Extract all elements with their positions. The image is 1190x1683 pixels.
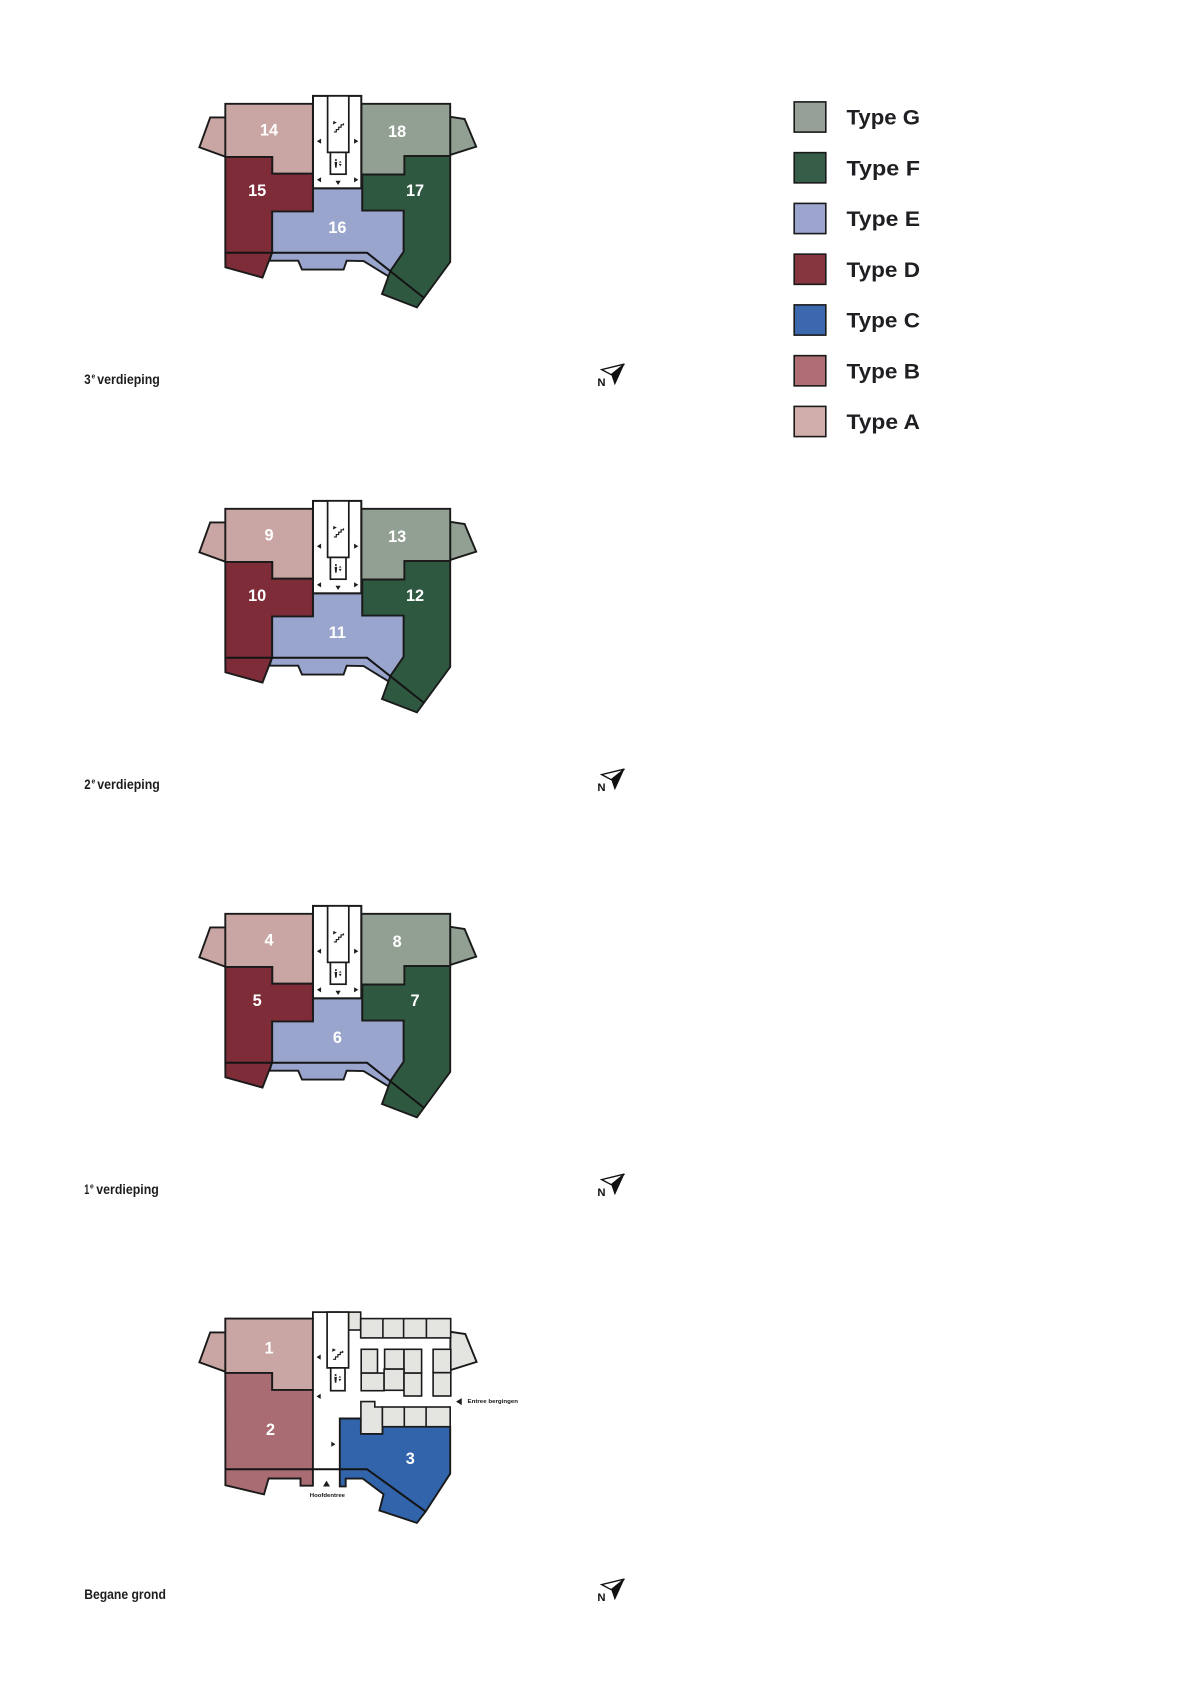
- svg-text:Type D: Type D: [847, 259, 921, 282]
- svg-text:Type C: Type C: [847, 310, 921, 333]
- svg-text:5: 5: [253, 992, 262, 1010]
- svg-text:Hoofdentree: Hoofdentree: [310, 1493, 346, 1499]
- svg-text:verdieping: verdieping: [96, 1181, 159, 1197]
- svg-text:1: 1: [84, 1181, 89, 1197]
- svg-text:e: e: [92, 777, 96, 786]
- svg-text:16: 16: [328, 219, 346, 237]
- svg-text:3: 3: [84, 371, 91, 387]
- svg-text:verdieping: verdieping: [97, 776, 160, 792]
- svg-text:13: 13: [388, 528, 406, 546]
- svg-text:Type F: Type F: [847, 157, 921, 180]
- svg-text:Type G: Type G: [847, 107, 921, 130]
- svg-text:e: e: [90, 1182, 94, 1191]
- svg-text:11: 11: [329, 624, 346, 642]
- svg-text:9: 9: [264, 526, 273, 544]
- svg-text:6: 6: [333, 1029, 342, 1047]
- svg-text:10: 10: [248, 587, 266, 605]
- svg-text:Type E: Type E: [847, 208, 921, 231]
- svg-text:18: 18: [388, 123, 406, 141]
- svg-text:17: 17: [406, 182, 424, 200]
- svg-text:8: 8: [393, 933, 402, 951]
- svg-text:verdieping: verdieping: [97, 371, 160, 387]
- svg-text:15: 15: [248, 182, 266, 200]
- svg-text:e: e: [92, 372, 96, 381]
- svg-text:Begane grond: Begane grond: [84, 1586, 166, 1602]
- svg-text:1: 1: [264, 1340, 273, 1358]
- svg-text:Entree bergingen: Entree bergingen: [468, 1399, 519, 1405]
- svg-text:7: 7: [410, 992, 419, 1010]
- svg-text:Type B: Type B: [847, 360, 921, 383]
- svg-text:14: 14: [260, 121, 278, 139]
- svg-text:2: 2: [84, 776, 91, 792]
- svg-text:3: 3: [406, 1450, 415, 1468]
- svg-text:12: 12: [406, 587, 424, 605]
- svg-text:2: 2: [266, 1421, 275, 1439]
- svg-text:Type A: Type A: [847, 411, 921, 434]
- svg-text:4: 4: [264, 931, 273, 949]
